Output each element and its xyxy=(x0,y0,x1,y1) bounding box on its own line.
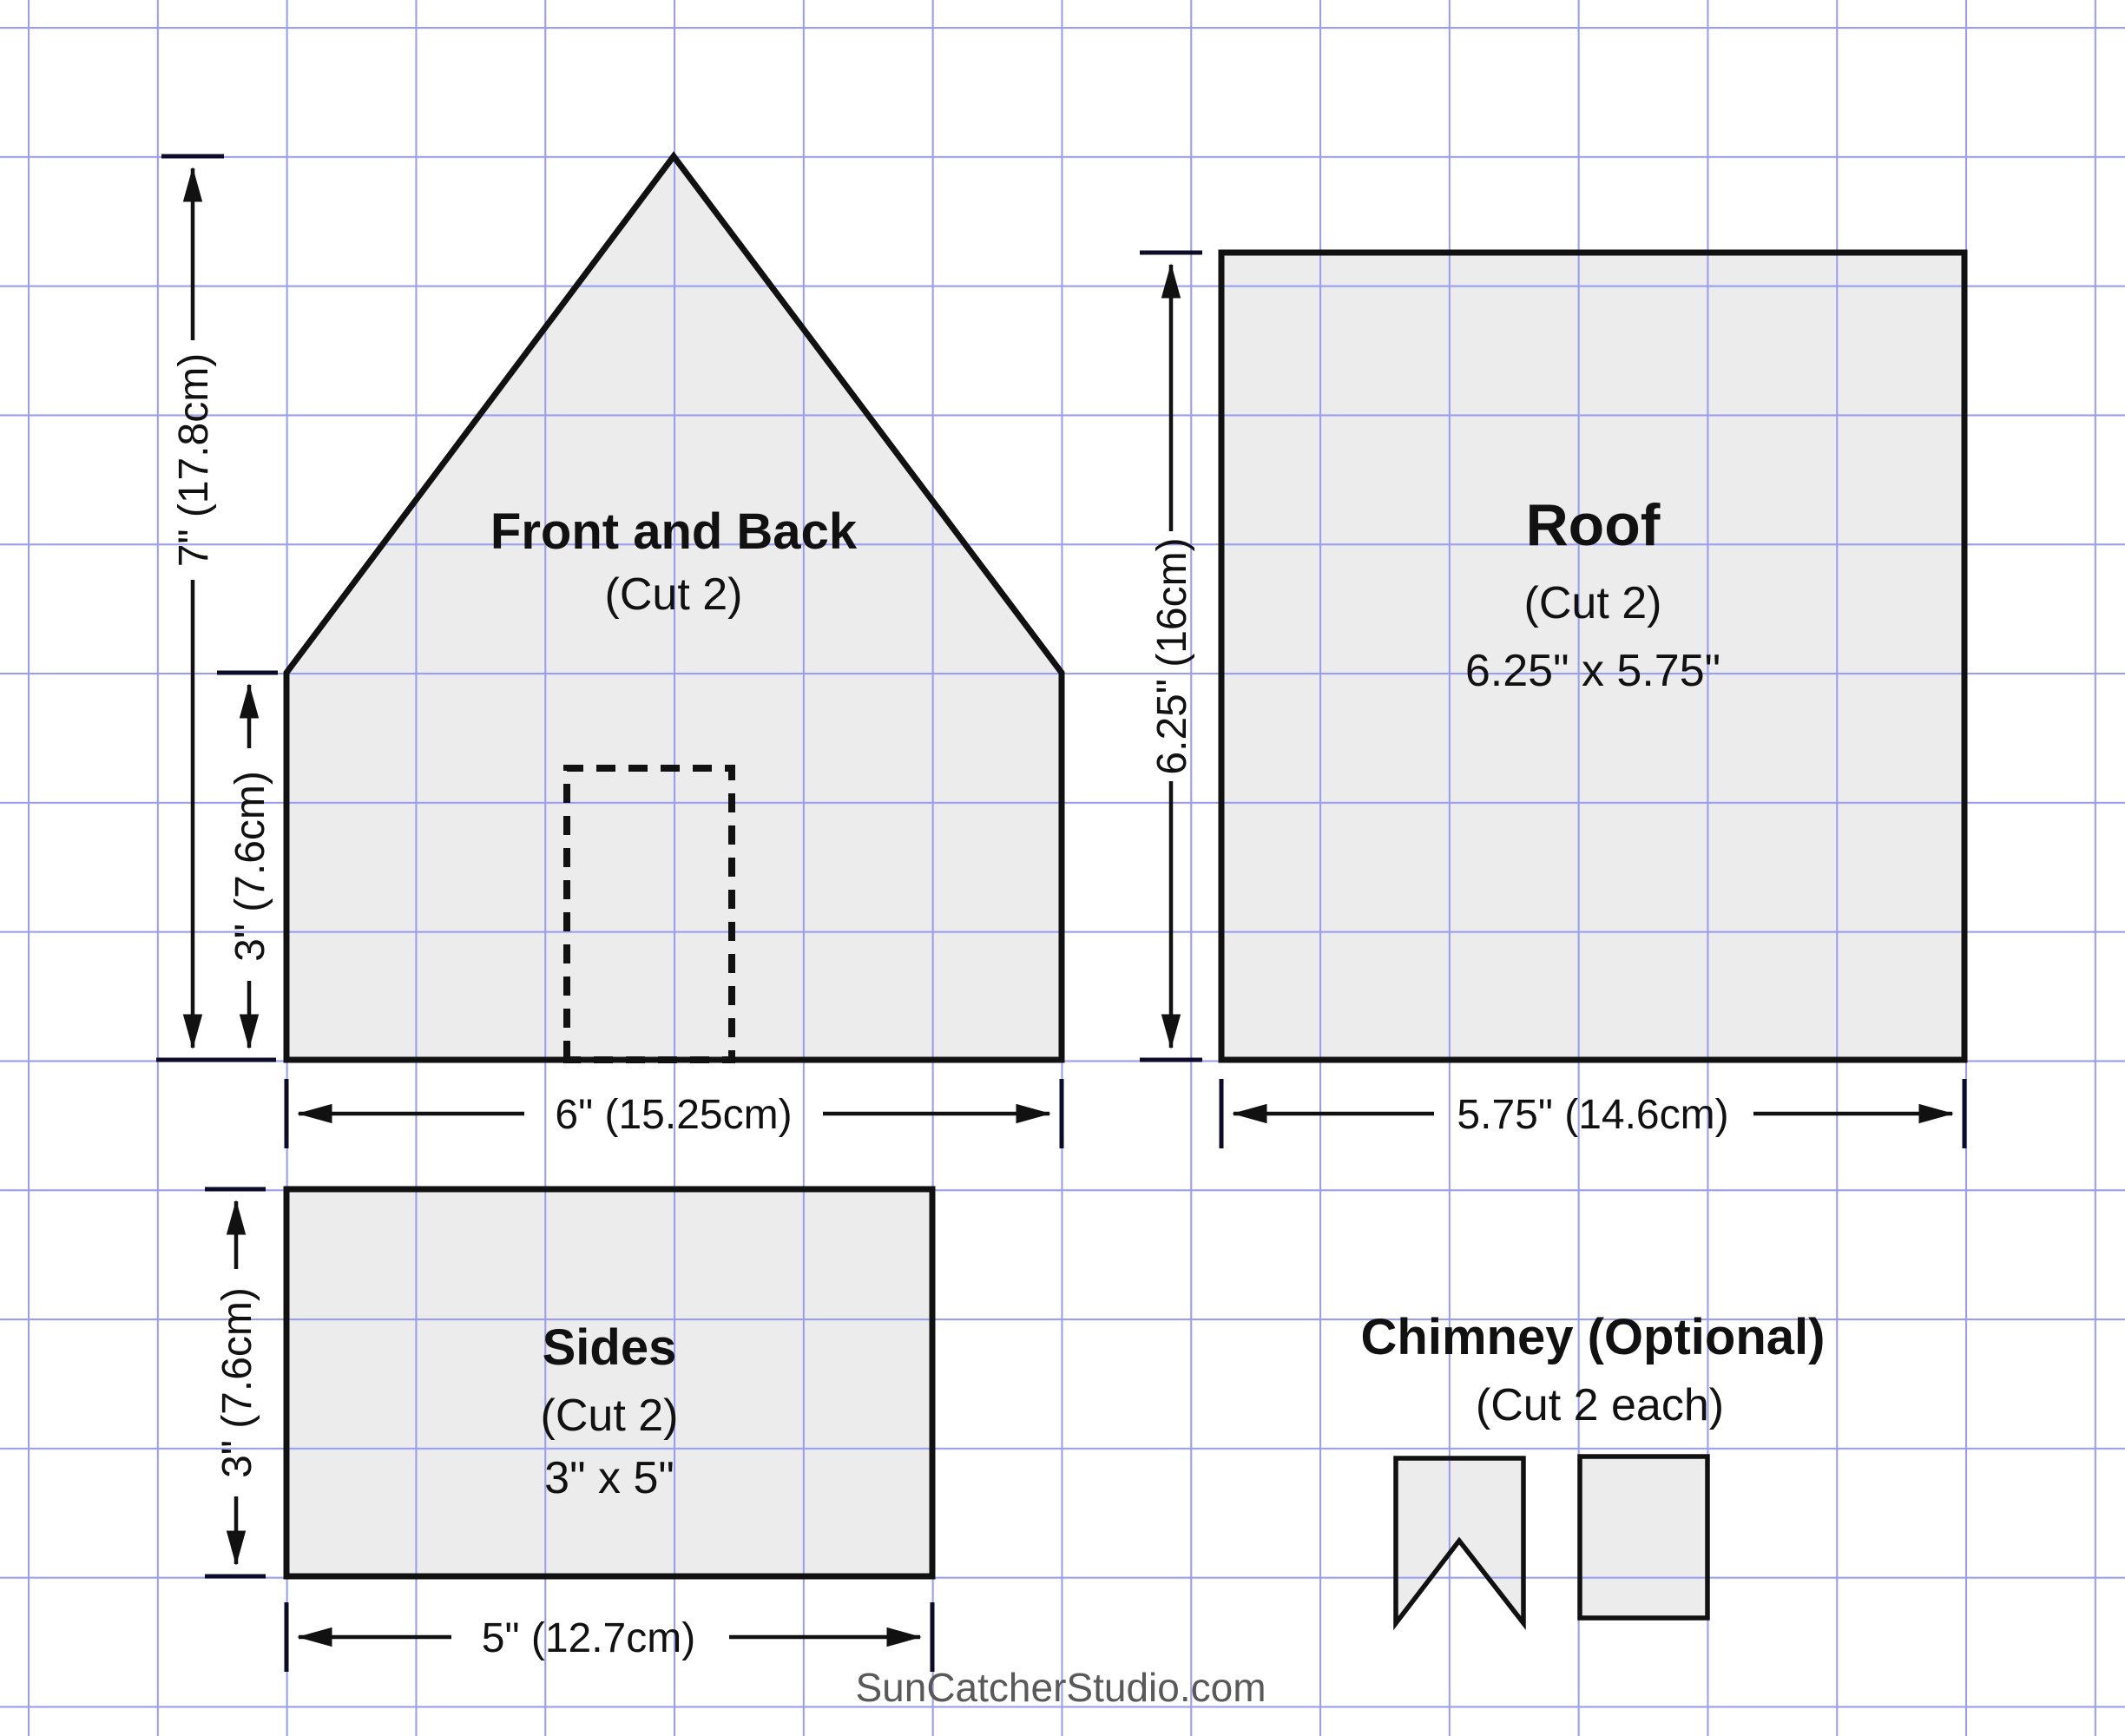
roof-title: Roof xyxy=(1526,492,1661,558)
sides-size-label: 3" x 5" xyxy=(544,1453,674,1503)
chimney-cut-label: (Cut 2 each) xyxy=(1476,1380,1724,1430)
pattern-page: Front and Back (Cut 2) 7" (17.8cm) 3" (7… xyxy=(0,0,2125,1736)
gingerbread-template-svg: Front and Back (Cut 2) 7" (17.8cm) 3" (7… xyxy=(0,0,2125,1736)
dim-label-front-width: 6" (15.25cm) xyxy=(555,1092,792,1138)
sides-title: Sides xyxy=(543,1319,677,1376)
dim-label-roof-width: 5.75" (14.6cm) xyxy=(1457,1092,1728,1138)
sides-cut-label: (Cut 2) xyxy=(541,1391,679,1441)
dim-label-front-wall-height: 3" (7.6cm) xyxy=(227,771,273,962)
dim-label-side-height: 3" (7.6cm) xyxy=(214,1287,260,1478)
roof-size-label: 6.25" x 5.75" xyxy=(1465,646,1720,696)
watermark-text: SunCatcherStudio.com xyxy=(855,1665,1266,1710)
front-back-cut-label: (Cut 2) xyxy=(605,569,743,620)
dim-label-side-width: 5" (12.7cm) xyxy=(482,1615,695,1661)
dim-label-roof-height: 6.25" (16cm) xyxy=(1149,537,1195,774)
chimney-title: Chimney (Optional) xyxy=(1361,1309,1826,1365)
roof-cut-label: (Cut 2) xyxy=(1524,578,1662,628)
dim-label-front-total-height: 7" (17.8cm) xyxy=(171,353,217,567)
front-back-title: Front and Back xyxy=(490,503,858,560)
